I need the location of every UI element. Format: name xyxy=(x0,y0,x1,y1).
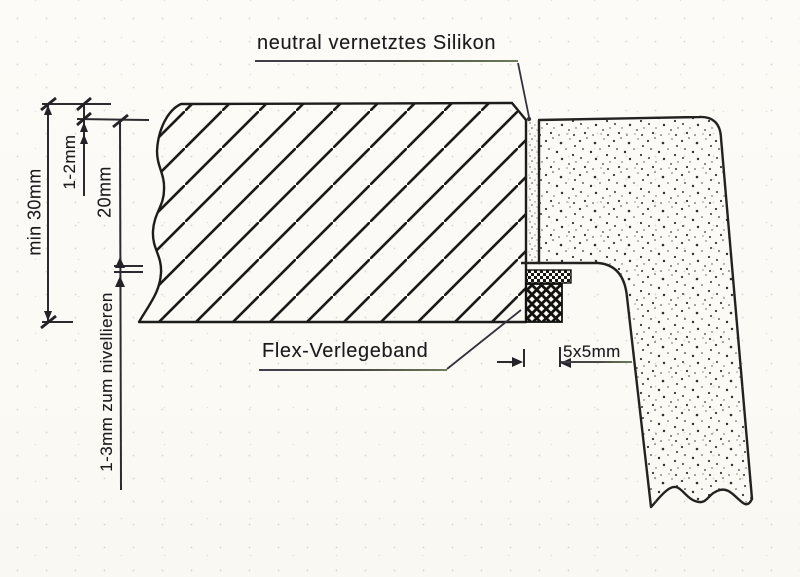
flex-tape-square xyxy=(526,284,562,322)
leveling-dimension-label: 1-3mm zum nivellieren xyxy=(97,292,117,471)
tape-callout-label: Flex-Verlegeband xyxy=(262,340,428,363)
silicone-leader-dot xyxy=(527,117,531,121)
silicone-callout-underline xyxy=(255,60,518,62)
silicone-joint-fill xyxy=(527,120,540,263)
worktop-slab-hatched xyxy=(139,103,526,322)
bedding-strip xyxy=(526,270,571,283)
dim-line-20mm-and-leveling-tail xyxy=(120,121,121,490)
tape-size-dimension-label: 5x5mm xyxy=(563,342,621,362)
drawing-canvas xyxy=(0,0,800,577)
sink-body xyxy=(539,117,752,507)
technical-drawing-page: neutral vernetztes Silikon Flex-Verlegeb… xyxy=(0,0,800,577)
ext-line-sink-top xyxy=(77,119,149,120)
slab-thickness-dimension-label: min 30mm xyxy=(25,168,46,255)
top-offset-dimension-label: 1-2mm xyxy=(60,135,80,190)
joint-depth-dimension-label: 20mm xyxy=(95,166,116,218)
silicone-label-leader-line xyxy=(518,63,529,117)
tape-size-underline xyxy=(561,361,632,363)
tape-callout-underline xyxy=(259,369,447,371)
silicone-callout-label: neutral vernetztes Silikon xyxy=(257,32,496,55)
